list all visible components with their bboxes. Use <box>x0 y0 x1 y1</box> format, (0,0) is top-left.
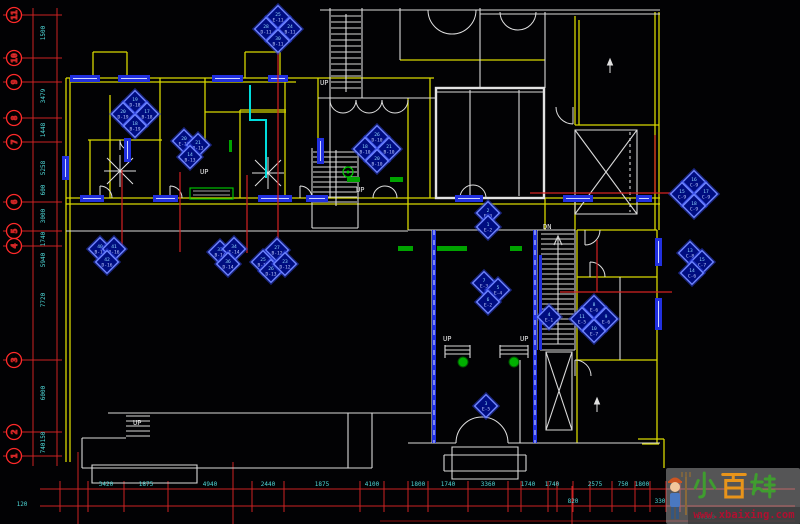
tag-number: 20 <box>374 156 380 162</box>
tag-number: 5 <box>497 285 500 291</box>
tag-number: 6 <box>487 297 490 303</box>
tag-number: 25 <box>275 12 281 18</box>
tag-number: 24 <box>287 24 293 30</box>
dim-text: 5940 <box>40 252 47 267</box>
dim-text: 750 <box>618 481 629 488</box>
dim-text: 1740 <box>441 481 456 488</box>
tag-number: 14 <box>187 152 193 158</box>
column-marker <box>509 357 519 367</box>
shaft-x-small <box>546 352 572 430</box>
tag-code: B-10 <box>371 162 382 168</box>
dim-text: 1740 <box>521 481 536 488</box>
grid-bubble-number: 8 <box>10 115 19 120</box>
tag-code: C-6 <box>688 274 697 280</box>
dim-text: 740 <box>40 442 47 453</box>
green-sill <box>398 246 413 251</box>
tag-code: E-5 <box>578 320 587 326</box>
tag-number: 27 <box>274 245 280 251</box>
stair-label: UP <box>320 79 328 87</box>
dim-text: 3479 <box>40 88 47 103</box>
tag-code: E-5 <box>482 407 491 413</box>
grid-bubble-number: 3 <box>10 357 19 362</box>
device-tag-cluster: 19D-1820D-1917B-1818B-19 <box>112 91 159 138</box>
dim-text: 1800 <box>411 481 426 488</box>
watermark-url: www.xbaixing.com <box>688 507 800 524</box>
grid-bubble-number: 5 <box>10 228 19 233</box>
tag-code: B-13 <box>184 158 195 164</box>
device-tag-cluster: 25E-1128D-1124B-1130B-11 <box>255 6 302 53</box>
tag-number: 30 <box>275 36 281 42</box>
tag-number: 20 <box>120 109 126 115</box>
tag-number: 11 <box>579 314 585 320</box>
device-tag-clusters: 25E-1128D-1124B-1130B-1119D-1820D-1917B-… <box>89 6 718 418</box>
tag-code: D-11 <box>260 30 271 36</box>
device-tag-cluster: 27B-1225B-1326D-1323D-12 <box>252 239 297 283</box>
tag-number: 18 <box>691 201 697 207</box>
stair-label: UP <box>520 335 528 343</box>
device-tag-cluster: 33B-1434E-1436D-14 <box>209 238 246 276</box>
tag-code: C-9 <box>702 195 711 201</box>
tag-number: 41 <box>111 244 117 250</box>
dim-text: 5258 <box>40 160 47 175</box>
tag-number: 26 <box>268 266 274 272</box>
tag-code: B-10 <box>359 150 370 156</box>
brand-char-姓 <box>750 470 776 500</box>
dim-text: 3420 <box>99 481 114 488</box>
tag-number: 14 <box>689 268 695 274</box>
grid-bubble-number: 9 <box>10 79 19 84</box>
dim-text: 820 <box>568 498 579 505</box>
dim-text: 7720 <box>40 292 47 307</box>
tag-number: 42 <box>104 257 110 263</box>
tag-code: E-2 <box>484 303 493 309</box>
tag-code: C-9 <box>690 183 699 189</box>
tag-code: B-18 <box>141 115 152 121</box>
tag-code: B-19 <box>129 127 140 133</box>
green-sill <box>229 140 232 152</box>
entrance-doors <box>456 417 508 443</box>
dim-text: 3360 <box>481 481 496 488</box>
tag-number: 9 <box>605 314 608 320</box>
dim-text: 120 <box>17 501 28 508</box>
partitions-white <box>66 8 660 483</box>
device-tag-cluster: 16C-915C-917C-918C-9 <box>671 171 718 218</box>
brand-char-strokes <box>752 475 775 498</box>
tag-code: D-13 <box>265 272 276 278</box>
tag-number: 36 <box>225 259 231 265</box>
brand-char-百 <box>721 470 747 500</box>
tag-code: C-9 <box>690 207 699 213</box>
device-tag-cluster: 13C-815C-714C-6 <box>679 242 714 285</box>
tag-number: 13 <box>687 248 693 254</box>
core-lightwell <box>436 88 544 198</box>
brand-char-小 <box>692 470 718 500</box>
bottom-dimension-texts: 3420187549402440187541001800174033601740… <box>17 481 716 521</box>
tag-number: 21 <box>386 144 392 150</box>
tag-number: 16 <box>691 177 697 183</box>
tag-code: D-10 <box>371 138 382 144</box>
stair-label: UP <box>200 168 208 176</box>
grid-bubble-number: 10 <box>10 53 19 63</box>
tag-code: E-6 <box>602 320 611 326</box>
tag-code: B-11 <box>284 30 295 36</box>
hall-entry-steps <box>445 345 528 358</box>
dim-text: 4100 <box>365 481 380 488</box>
watermark-brand-text: 小百姓 <box>666 468 667 469</box>
device-tag-cluster: 2E-31E-2 <box>477 202 500 239</box>
device-tag-cluster: 8E-611E-59E-610E-7 <box>571 296 618 343</box>
watermark: 小百姓 www.xbaixing.com <box>666 468 800 524</box>
tag-code: B-11 <box>272 42 283 48</box>
top-room-walls <box>400 8 480 88</box>
tag-number: 23 <box>282 259 288 265</box>
section-marker-icon <box>608 59 613 73</box>
dim-text: 1800 <box>635 481 650 488</box>
tag-code: D-19 <box>117 115 128 121</box>
walls-outer <box>66 78 660 462</box>
dim-text: 6000 <box>40 385 47 400</box>
column-marker <box>458 357 468 367</box>
tag-number: 1 <box>487 222 490 228</box>
tag-code: C-9 <box>678 195 687 201</box>
cad-floorplan-screenshot: 1110987654321 <box>0 0 800 524</box>
tag-code: B-10 <box>383 150 394 156</box>
floor-plan-canvas: 1110987654321 <box>0 0 800 524</box>
tag-number: 15 <box>699 257 705 263</box>
dim-text: 1740 <box>545 481 560 488</box>
dim-text: 1875 <box>139 481 154 488</box>
tag-code: E-1 <box>545 318 554 324</box>
tag-number: 17 <box>144 109 150 115</box>
dim-extension-lines <box>78 452 572 524</box>
tag-number: 17 <box>703 189 709 195</box>
tag-number: 15 <box>679 189 685 195</box>
green-sill <box>347 177 360 182</box>
tag-number: 25 <box>260 257 266 263</box>
device-tag-cluster: 20E-1321B-1314B-13 <box>173 130 210 169</box>
tag-number: 21 <box>195 140 201 146</box>
device-tag-cluster: 7E-35E-46E-2 <box>473 272 510 314</box>
dim-text: 600 <box>40 184 47 195</box>
section-marker-icon <box>595 398 600 412</box>
grid-bubble-number: 1 <box>10 453 19 458</box>
device-tag: 3E-5 <box>475 395 498 418</box>
left-dimension-texts: 1500347914485258600300017405940772060001… <box>40 25 47 453</box>
dim-text: 150 <box>40 431 47 442</box>
arched-openings <box>328 98 410 113</box>
tag-number: 3 <box>485 401 488 407</box>
dim-text: 2575 <box>588 481 603 488</box>
tag-number: 10 <box>591 326 597 332</box>
device-tag-cluster: 3E-5 <box>475 395 498 418</box>
cyan-conduit <box>250 85 266 178</box>
stair-label: UP <box>443 335 451 343</box>
dim-text: 330 <box>655 498 666 505</box>
dim-text: 2440 <box>261 481 276 488</box>
grid-bubble-number: 7 <box>10 139 19 144</box>
tag-code: E-6 <box>590 308 599 314</box>
tag-code: D-14 <box>222 265 233 271</box>
device-tag-cluster: 26D-1018B-1021B-1020B-10 <box>354 126 401 173</box>
door-double-arcs <box>373 10 536 198</box>
grid-bubble-number: 6 <box>10 199 19 204</box>
doors-white <box>100 10 605 443</box>
porch <box>444 447 526 479</box>
grid-axis-left: 1110987654321 <box>3 8 62 467</box>
tag-number: 18 <box>132 121 138 127</box>
tag-code: D-12 <box>279 265 290 271</box>
tag-number: 8 <box>593 302 596 308</box>
tag-number: 7 <box>483 278 486 284</box>
core-inner <box>436 90 544 196</box>
dim-text: 1740 <box>40 231 47 246</box>
tag-number: 4 <box>548 312 551 318</box>
dim-text: 4940 <box>203 481 218 488</box>
tag-code: D-18 <box>129 103 140 109</box>
tag-number: 20 <box>181 136 187 142</box>
tag-code: E-11 <box>272 18 283 24</box>
device-tag-cluster: 40B-1741B-1642D-16 <box>89 238 126 274</box>
stair-label: UP <box>356 186 364 194</box>
grid-bubble-number: 2 <box>10 429 19 434</box>
grid-bubble-number: 11 <box>10 10 19 20</box>
tag-code: D-16 <box>101 263 112 269</box>
dim-text: 1448 <box>40 122 47 137</box>
tag-code: E-2 <box>484 228 493 234</box>
dim-text: 1875 <box>315 481 330 488</box>
watermark-brand-glyphs <box>692 470 776 508</box>
tag-number: 18 <box>362 144 368 150</box>
brand-char-strokes <box>695 473 715 497</box>
top-edge <box>320 10 660 88</box>
tag-number: 19 <box>132 97 138 103</box>
green-sill <box>510 246 522 251</box>
dim-text: 3000 <box>40 208 47 223</box>
green-sill <box>390 177 403 182</box>
grid-bubble-number: 4 <box>10 243 19 248</box>
walls-top-bumps <box>93 52 280 78</box>
brand-char-strokes <box>723 475 746 498</box>
tag-number: 28 <box>263 24 269 30</box>
green-sill <box>437 246 467 251</box>
green-fixture-lines <box>193 191 230 195</box>
stair-grand-arrow <box>554 236 562 344</box>
tag-number: 34 <box>231 244 237 250</box>
tag-number: 26 <box>374 132 380 138</box>
tag-code: E-7 <box>590 332 599 338</box>
walls-yellow <box>66 12 664 468</box>
stair-label: DN <box>543 223 551 231</box>
stair-label: UP <box>133 419 141 427</box>
stair-direction-labels: UPUPUPDNUPUPUP <box>133 79 551 427</box>
dim-text: 1500 <box>40 25 47 40</box>
